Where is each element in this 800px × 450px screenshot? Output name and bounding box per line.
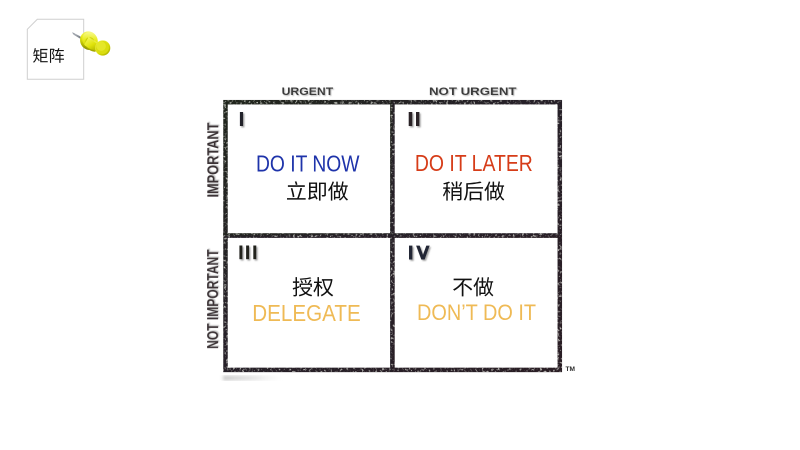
svg-text:DON’T DO IT: DON’T DO IT [417,300,536,325]
svg-text:DELEGATE: DELEGATE [252,300,360,326]
svg-text:NOT URGENT: NOT URGENT [429,86,517,98]
svg-text:DO IT LATER: DO IT LATER [415,150,533,176]
svg-text:DO IT NOW: DO IT NOW [256,150,360,176]
svg-text:TM: TM [566,366,576,373]
svg-text:URGENT: URGENT [282,86,334,98]
svg-text:NOT IMPORTANT: NOT IMPORTANT [205,249,222,349]
svg-text:IMPORTANT: IMPORTANT [205,122,222,197]
